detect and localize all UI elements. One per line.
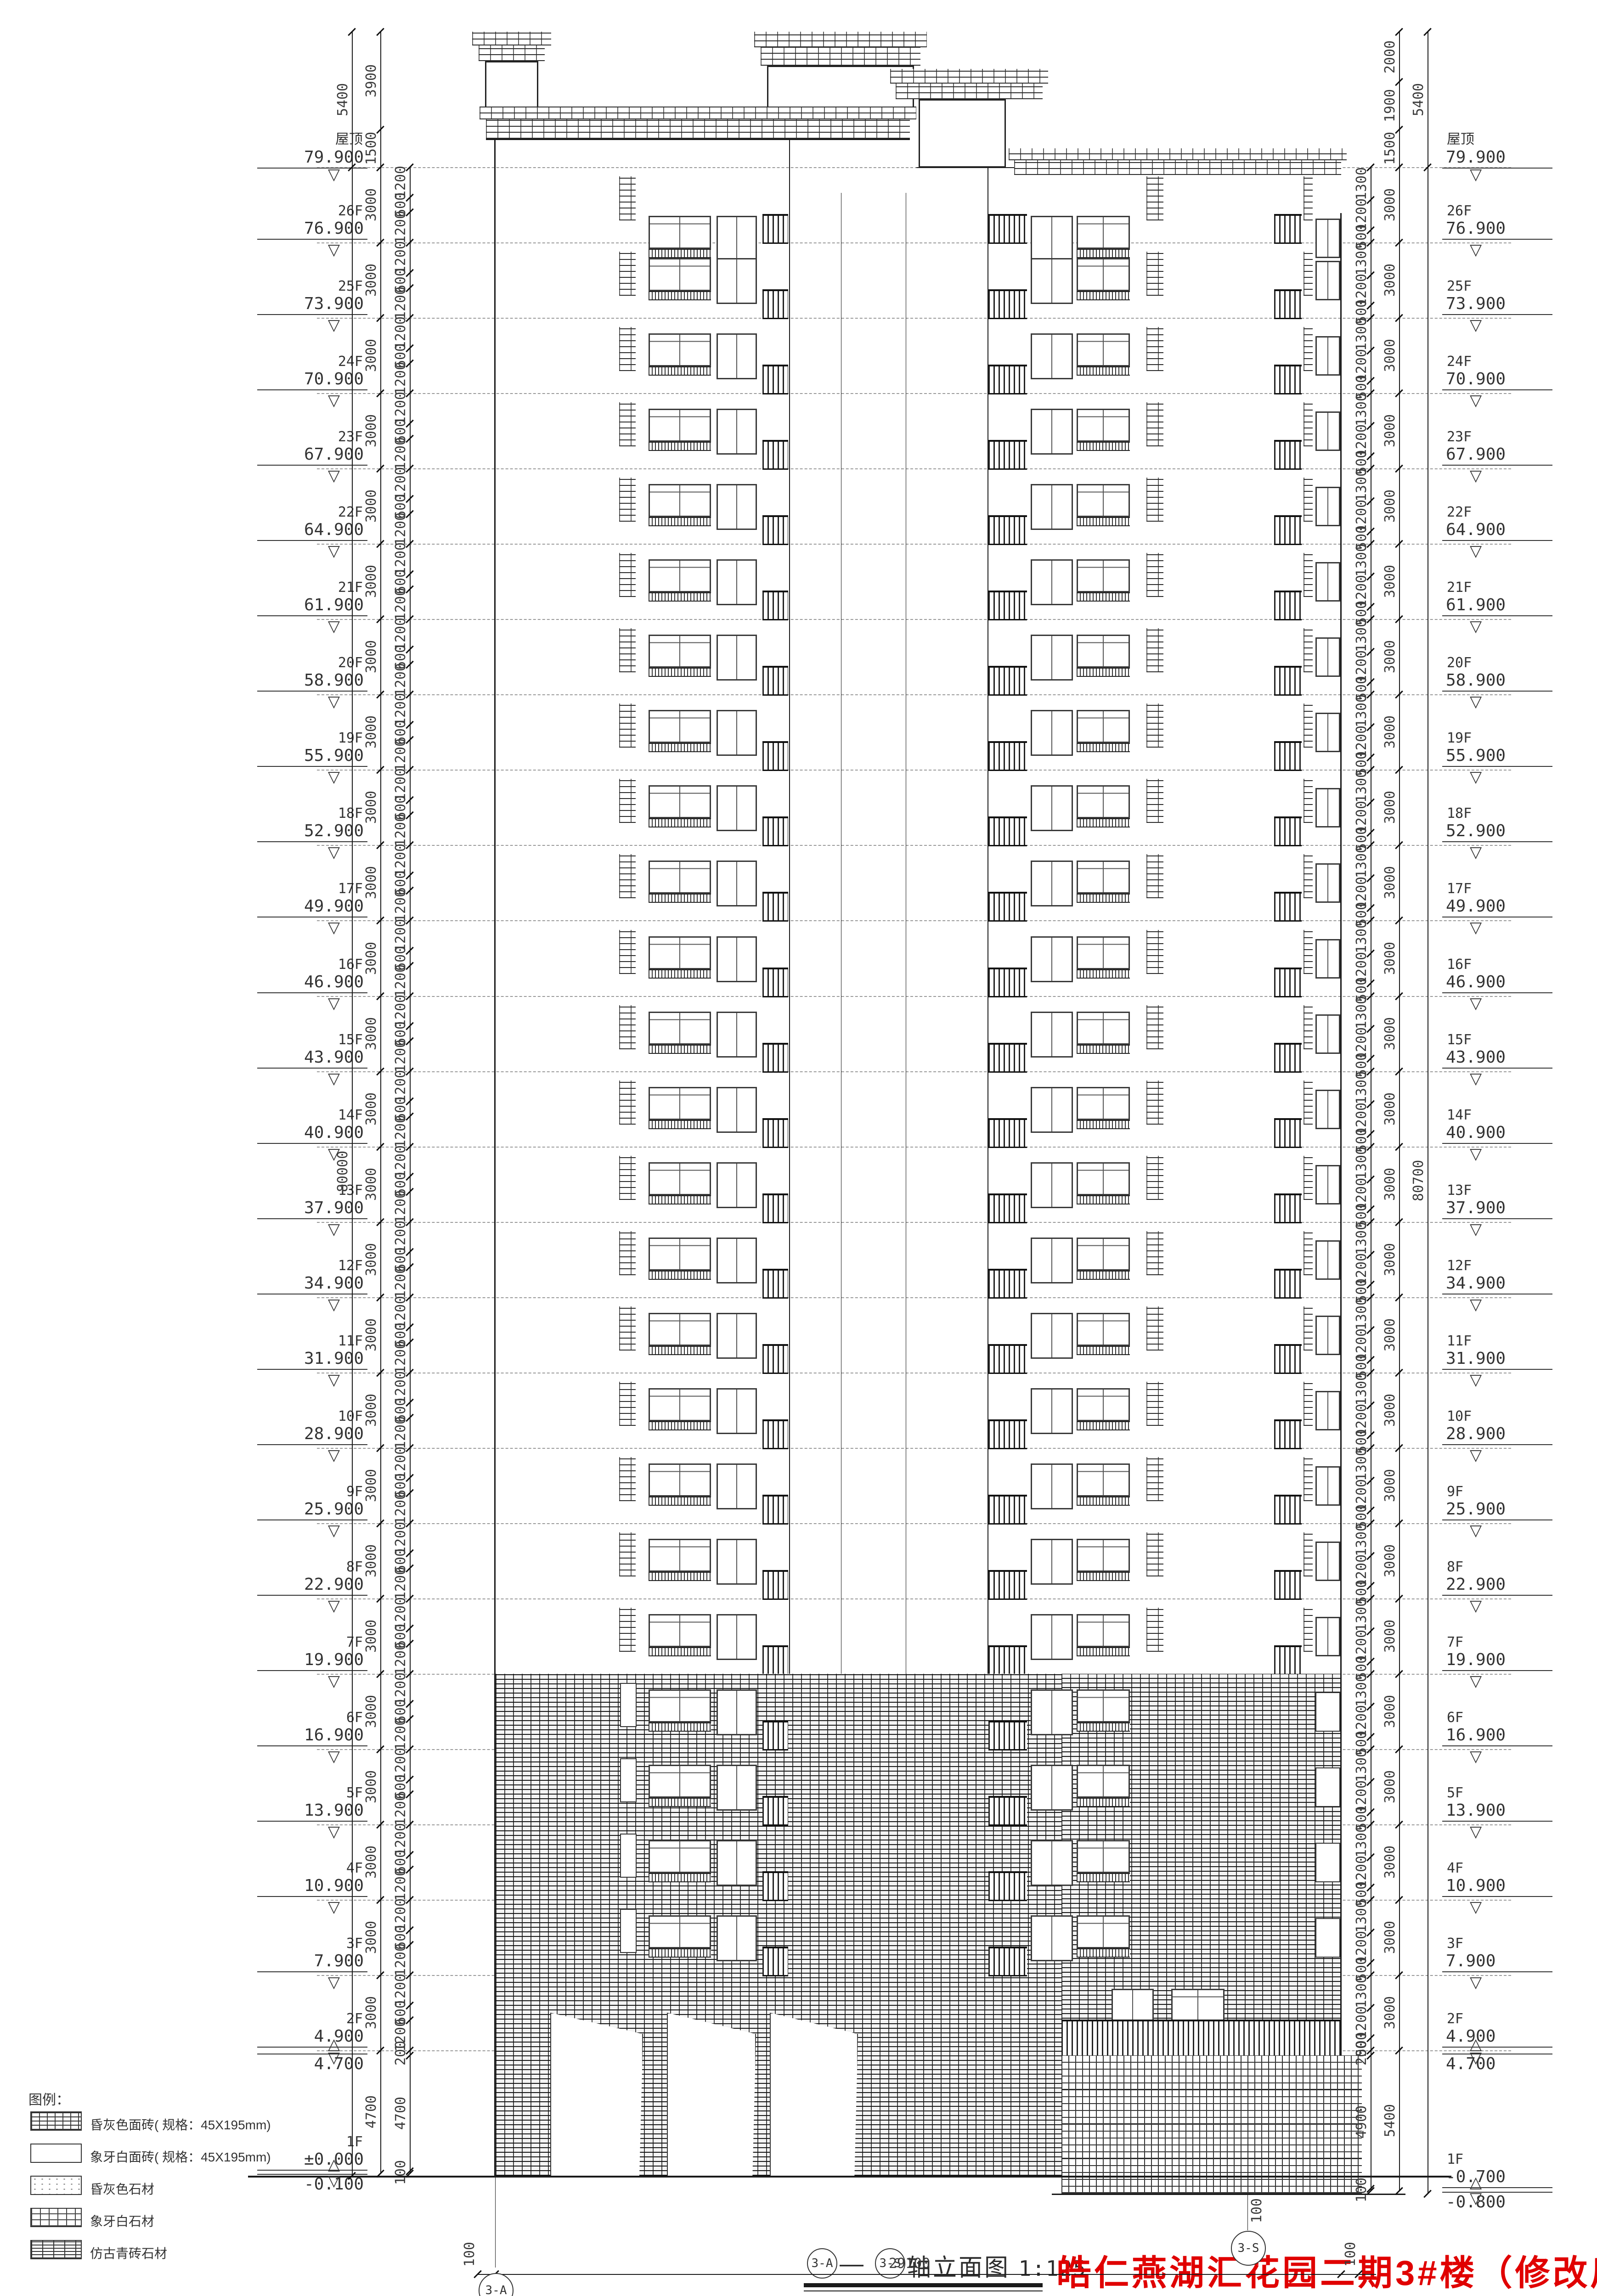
leftwing-core-joint	[789, 140, 790, 1674]
facade-brick-strip	[1304, 779, 1313, 823]
dimension-value: 3000	[365, 1017, 378, 1050]
balcony-railing	[1274, 666, 1302, 696]
dimension-value: 3000	[1383, 264, 1397, 297]
window-sill-railing	[649, 1421, 711, 1430]
window-sill-railing	[1077, 1647, 1130, 1656]
elevation-value: 58.900	[1442, 671, 1552, 692]
level-mark: 5F13.900▽	[1442, 1785, 1552, 1826]
dimension-value: 1200	[394, 1416, 408, 1449]
window	[1031, 1689, 1073, 1735]
level-symbol: ▽	[328, 319, 340, 332]
stair-bulkhead-cap-step	[761, 47, 920, 66]
dimension-value: 1500	[365, 132, 378, 165]
window-sill-railing	[1077, 1421, 1130, 1430]
level-mark: 屋顶79.900▽	[1442, 128, 1552, 169]
balcony-railing	[762, 741, 788, 771]
floor-label: 23F	[1442, 429, 1552, 445]
dimension-value: 200	[394, 2040, 408, 2065]
dimension-line	[1428, 32, 1428, 2194]
balcony-railing	[988, 1495, 1027, 1525]
floor-label: 12F	[257, 1258, 367, 1274]
floor-label: 5F	[1442, 1785, 1552, 1801]
elevation-value: 70.900	[1442, 370, 1552, 390]
facade-brick-strip	[1146, 1231, 1163, 1275]
building-right-edge	[1340, 213, 1342, 2055]
window-sill-railing	[1077, 291, 1130, 300]
facade-brick-strip	[1304, 1005, 1313, 1049]
dimension-value: 1200	[394, 1491, 408, 1525]
dimension-value: 5400	[1412, 83, 1426, 116]
facade-brick-strip	[1304, 1382, 1313, 1426]
level-symbol: ▽	[328, 470, 340, 482]
window-wide	[1077, 1689, 1130, 1722]
dimension-value: 1300	[1355, 845, 1369, 878]
facade-brick-strip	[1304, 1306, 1313, 1351]
level-mark: 6F16.900▽	[257, 1710, 367, 1751]
floor-label: 2F	[1442, 2011, 1552, 2027]
balcony-railing	[762, 440, 788, 470]
dimension-value: 3000	[1383, 1469, 1397, 1502]
level-mark: 24F70.900▽	[1442, 354, 1552, 395]
level-mark: 16F46.900▽	[1442, 957, 1552, 998]
dimension-value: 1200	[394, 889, 408, 922]
dimension-value: 3000	[365, 414, 378, 447]
level-symbol: ▽	[328, 1374, 340, 1386]
window-small	[1315, 1918, 1340, 1958]
floor-label: 20F	[257, 655, 367, 671]
dimension-value: 2000	[1383, 40, 1397, 73]
level-mark: 21F61.900▽	[1442, 580, 1552, 621]
facade-brick-strip	[1146, 854, 1163, 898]
window	[1315, 487, 1340, 526]
level-symbol: ▽	[1470, 1449, 1482, 1462]
dimension-line	[1399, 32, 1400, 2191]
window-sill-railing	[649, 1497, 711, 1506]
dimension-value: 1200	[394, 738, 408, 771]
elevation-value: 79.900	[1442, 148, 1552, 169]
balcony-railing	[988, 440, 1027, 470]
facade-brick-strip	[1304, 1532, 1313, 1576]
window	[1315, 1466, 1340, 1506]
dimension-value: 3000	[365, 1695, 378, 1728]
window-sill-railing	[1077, 592, 1130, 602]
dimension-value: 3000	[1383, 1846, 1397, 1879]
dimension-value: 3000	[1383, 1243, 1397, 1276]
floor-label: 8F	[1442, 1559, 1552, 1575]
level-symbol: ▽	[328, 1449, 340, 1462]
rightwing-cornice-top-course	[1009, 148, 1347, 160]
chimney-shaft	[485, 61, 538, 110]
elevation-value: 4.900	[257, 2027, 367, 2048]
level-symbol: ▽	[328, 2160, 340, 2172]
facade-brick-strip	[1146, 1382, 1163, 1426]
dimension-value: 1300	[1355, 769, 1369, 802]
level-mark: 3F7.900▽	[257, 1936, 367, 1977]
window	[717, 635, 757, 681]
balcony-railing	[1274, 1118, 1302, 1148]
window	[1031, 1313, 1073, 1359]
window-sill-railing	[1077, 1948, 1130, 1958]
balcony-railing	[988, 214, 1027, 244]
window-sill-railing	[649, 517, 711, 526]
dimension-value: 1200	[394, 1190, 408, 1223]
floor-centerline	[317, 544, 1511, 545]
floor-label: 13F	[1442, 1182, 1552, 1199]
level-symbol: ▽	[1470, 846, 1482, 859]
window-wide	[649, 1840, 711, 1873]
window	[717, 258, 757, 304]
floor-label: 22F	[257, 504, 367, 520]
dimension-value: 3000	[1383, 1996, 1397, 2029]
level-mark: 25F73.900▽	[1442, 278, 1552, 320]
axis-grid-line	[495, 2176, 496, 2268]
level-mark: 23F67.900▽	[1442, 429, 1552, 470]
level-mark: 21F61.900▽	[257, 580, 367, 621]
window-sill-railing	[649, 1873, 711, 1882]
balcony-railing	[988, 1570, 1027, 1600]
window	[717, 1012, 757, 1058]
facade-brick-strip	[1304, 1156, 1313, 1200]
elevation-value: 16.900	[257, 1726, 367, 1746]
window-sill-railing	[649, 1722, 711, 1732]
dimension-value: 1300	[1355, 1824, 1369, 1857]
facade-brick-strip	[1146, 1005, 1163, 1049]
dimension-value: 1300	[1355, 1221, 1369, 1255]
dimension-value: 1200	[394, 1717, 408, 1750]
level-symbol: ▽	[328, 1675, 340, 1688]
ground-line	[248, 2176, 1451, 2178]
balcony-railing	[1274, 1043, 1302, 1073]
floor-centerline	[317, 845, 1511, 846]
level-mark: 2F4.900▽	[257, 2011, 367, 2052]
window	[1315, 1391, 1340, 1430]
level-symbol: ▽	[328, 922, 340, 934]
window	[717, 1539, 757, 1585]
level-mark: 22F64.900▽	[1442, 504, 1552, 546]
dimension-value: 1300	[1355, 694, 1369, 727]
dimension-value: 1300	[1355, 1071, 1369, 1104]
balcony-railing	[988, 1193, 1027, 1223]
elevation-value: 40.900	[257, 1123, 367, 1144]
balcony-railing	[1274, 591, 1302, 620]
floor-label: 25F	[1442, 278, 1552, 294]
dimension-value: 3000	[365, 1770, 378, 1803]
balcony-railing	[762, 666, 788, 696]
dimension-value: 1200	[394, 211, 408, 244]
floor-centerline	[317, 1147, 1511, 1148]
balcony-railing	[988, 289, 1027, 319]
facade-brick-strip	[619, 930, 636, 974]
dimension-value: 1300	[1355, 468, 1369, 501]
window	[717, 861, 757, 906]
balcony-railing	[762, 1269, 788, 1299]
window-wide	[1077, 1238, 1130, 1271]
dimension-value: 1300	[1355, 317, 1369, 350]
dimension-value: 3000	[365, 1620, 378, 1653]
balcony-railing	[988, 1645, 1027, 1675]
floor-label: 15F	[257, 1032, 367, 1048]
level-mark: 10F28.900▽	[1442, 1408, 1552, 1450]
cornice-bottom-line	[486, 139, 910, 140]
balcony-railing	[762, 1570, 788, 1600]
level-symbol: ▽	[1470, 319, 1482, 332]
facade-brick-strip	[1304, 1608, 1313, 1652]
facade-brick-strip	[1146, 252, 1163, 296]
window-wide	[649, 1463, 711, 1497]
level-mark: 14F40.900▽	[257, 1107, 367, 1148]
elevation-value: 76.900	[257, 219, 367, 240]
dimension-value: 100	[1344, 2242, 1358, 2267]
elevation-value: 55.900	[257, 746, 367, 767]
dimension-value: 5400	[336, 83, 350, 116]
dimension-value: 4900	[1355, 2105, 1369, 2138]
floor-label: 16F	[257, 957, 367, 973]
facade-brick-strip	[1146, 1457, 1163, 1501]
level-mark: 5F13.900▽	[257, 1785, 367, 1826]
dimension-value: 3000	[1383, 1544, 1397, 1577]
project-title: 皓仁燕湖汇花园二期3#楼（修改后）	[1056, 2245, 1597, 2295]
window	[1031, 1463, 1073, 1509]
facade-brick-strip	[1304, 553, 1313, 597]
window	[1031, 216, 1073, 262]
facade-brick-strip	[1146, 930, 1163, 974]
balcony-railing	[988, 365, 1027, 394]
window-sill-railing	[649, 1045, 711, 1054]
window-wide	[649, 1915, 711, 1948]
level-symbol: ▽	[328, 771, 340, 783]
level-mark: 11F31.900▽	[257, 1333, 367, 1374]
dimension-value: 3000	[1383, 490, 1397, 523]
dimension-value: 3000	[365, 1846, 378, 1879]
floor-label: 23F	[257, 429, 367, 445]
level-mark: 17F49.900▽	[257, 881, 367, 922]
elevation-value: 22.900	[1442, 1575, 1552, 1596]
window-wide	[649, 861, 711, 894]
window	[717, 1388, 757, 1434]
stair-window	[620, 1909, 637, 1953]
window-sill-railing	[649, 1948, 711, 1958]
floor-centerline	[317, 1071, 1511, 1072]
elevation-value: 49.900	[257, 897, 367, 917]
facade-brick-strip	[619, 1457, 636, 1501]
dimension-value: 3000	[1383, 715, 1397, 748]
balcony-railing	[988, 741, 1027, 771]
level-mark: 13F37.900▽	[1442, 1182, 1552, 1224]
floor-label: 7F	[257, 1634, 367, 1650]
elevation-value: 46.900	[1442, 973, 1552, 993]
window	[717, 1238, 757, 1283]
balcony-railing	[988, 1344, 1027, 1374]
floor-label: 21F	[257, 580, 367, 596]
floor-label: 12F	[1442, 1258, 1552, 1274]
elevation-value: -0.700	[1442, 2167, 1552, 2188]
title-underline-thin	[804, 2290, 1043, 2291]
facade-brick-strip	[1304, 478, 1313, 522]
elevation-value: 61.900	[1442, 596, 1552, 616]
balcony-railing	[988, 1947, 1027, 1976]
level-mark: 12F34.900▽	[257, 1258, 367, 1299]
level-mark: -0.800▽	[1442, 2192, 1552, 2233]
window-sill-railing	[1077, 969, 1130, 979]
level-symbol: ▽	[328, 1826, 340, 1838]
balcony-railing	[762, 968, 788, 997]
window-wide	[649, 710, 711, 743]
entrance-opening	[667, 2013, 756, 2177]
window-wide	[1077, 1765, 1130, 1798]
window-wide	[1077, 861, 1130, 894]
facade-brick-strip	[1304, 402, 1313, 446]
floor-label: 17F	[257, 881, 367, 897]
window-sill-railing	[649, 894, 711, 903]
legend-swatch-brick	[30, 2111, 82, 2131]
floor-label: 3F	[257, 1936, 367, 1952]
dimension-value: 100	[1250, 2198, 1264, 2223]
floor-label: 15F	[1442, 1032, 1552, 1048]
level-symbol: ▽	[328, 1223, 340, 1236]
facade-brick-strip	[619, 628, 636, 672]
level-symbol: ▽	[1470, 1901, 1482, 1913]
elevation-value: 10.900	[1442, 1876, 1552, 1897]
chimney-cap	[472, 32, 551, 45]
level-symbol: ▽	[328, 1299, 340, 1311]
balcony-railing	[988, 515, 1027, 545]
dimension-value: 3000	[1383, 640, 1397, 673]
dimension-value: 3000	[365, 1092, 378, 1125]
legend-label: 象牙白石材	[90, 2212, 154, 2230]
floor-label: 24F	[257, 354, 367, 370]
balcony-railing	[762, 365, 788, 394]
window	[717, 1313, 757, 1359]
dimension-value: 1300	[1355, 996, 1369, 1029]
facade-brick-strip	[619, 1608, 636, 1652]
dimension-value: 1300	[1355, 1297, 1369, 1330]
elevation-value: 28.900	[1442, 1424, 1552, 1445]
dimension-value: 3000	[365, 941, 378, 974]
balcony-railing	[988, 1269, 1027, 1299]
facade-brick-strip	[1146, 703, 1163, 748]
dimension-value: 1200	[394, 437, 408, 470]
floor-label: 25F	[257, 278, 367, 294]
elevation-value: 19.900	[1442, 1650, 1552, 1671]
stair-window	[620, 1683, 637, 1727]
level-mark: 20F58.900▽	[257, 655, 367, 696]
dimension-value: 1200	[394, 1115, 408, 1148]
dimension-value: 1200	[394, 361, 408, 394]
level-mark: 4F10.900▽	[1442, 1860, 1552, 1902]
window	[717, 409, 757, 455]
dimension-value: 3000	[1383, 1620, 1397, 1653]
level-symbol: ▽	[1470, 1073, 1482, 1085]
window	[717, 785, 757, 831]
window	[1315, 1090, 1340, 1129]
dimension-value: 3900	[365, 64, 378, 97]
dimension-line	[352, 32, 353, 2176]
window-sill-railing	[1077, 249, 1130, 258]
facade-brick-strip	[619, 402, 636, 446]
level-symbol: ▽	[1470, 1299, 1482, 1311]
elevation-value: 34.900	[1442, 1274, 1552, 1294]
legend-label: 仿古青砖石材	[90, 2244, 167, 2262]
window-wide	[1077, 1313, 1130, 1346]
elevation-value: 43.900	[257, 1048, 367, 1069]
balcony-railing	[762, 1118, 788, 1148]
dimension-value: 3000	[1383, 1017, 1397, 1050]
dimension-value: 3000	[1383, 866, 1397, 899]
level-symbol: ▽	[1470, 1600, 1482, 1612]
elevation-value: 16.900	[1442, 1726, 1552, 1746]
window-sill-railing	[1077, 668, 1130, 677]
facade-brick-strip	[1304, 1457, 1313, 1501]
dimension-value: 1300	[1355, 1523, 1369, 1556]
window-sill-railing	[649, 442, 711, 451]
window-sill-railing	[1077, 1798, 1130, 1807]
level-mark: 8F22.900▽	[257, 1559, 367, 1600]
level-mark: 9F25.900▽	[1442, 1484, 1552, 1525]
elevation-value: 28.900	[257, 1424, 367, 1445]
level-mark: 19F55.900▽	[1442, 730, 1552, 771]
floor-label: 18F	[1442, 805, 1552, 822]
window-wide	[1077, 258, 1130, 291]
facade-brick-strip	[1146, 553, 1163, 597]
floor-label: 19F	[257, 730, 367, 746]
floor-label: 屋顶	[257, 128, 367, 148]
window	[717, 1087, 757, 1133]
level-symbol: ▽	[1470, 696, 1482, 708]
elevation-value: 25.900	[257, 1500, 367, 1520]
entrance-opening	[550, 2013, 643, 2177]
window-wide	[1077, 936, 1130, 969]
floor-label: 26F	[257, 203, 367, 219]
legend-swatch-grid	[30, 2208, 82, 2227]
dimension-value: 3000	[1383, 1318, 1397, 1351]
dimension-value: 1300	[1355, 1598, 1369, 1631]
dimension-value: 3000	[365, 715, 378, 748]
level-symbol: ▽	[1470, 244, 1482, 256]
dimension-value: 1300	[1355, 920, 1369, 953]
floor-centerline	[317, 1598, 1511, 1599]
level-symbol: ▽	[328, 1600, 340, 1612]
floor-centerline	[317, 468, 1511, 469]
balcony-railing	[988, 1871, 1027, 1901]
dimension-value: 3000	[365, 565, 378, 598]
dimension-value: 1200	[394, 964, 408, 997]
floor-centerline	[317, 770, 1511, 771]
window-wide	[1077, 1539, 1130, 1572]
dimension-value: 3000	[365, 1168, 378, 1201]
facade-brick-strip	[1146, 176, 1163, 220]
dimension-value: 3000	[365, 264, 378, 297]
facade-brick-strip	[619, 703, 636, 748]
window-sill-railing	[649, 1798, 711, 1807]
level-mark: 8F22.900▽	[1442, 1559, 1552, 1600]
dimension-value: 3000	[1383, 1092, 1397, 1125]
elevation-value: 46.900	[257, 973, 367, 993]
window	[1031, 635, 1073, 681]
window	[717, 1840, 757, 1886]
window	[1031, 1614, 1073, 1660]
elevation-value: 13.900	[1442, 1801, 1552, 1822]
level-symbol: ▽	[328, 169, 340, 181]
entrance-opening	[770, 2013, 858, 2177]
level-mark: 26F76.900▽	[257, 203, 367, 244]
window-sill-railing	[1077, 894, 1130, 903]
dimension-line	[380, 32, 381, 2173]
axis-bubble-left: 3-A	[479, 2273, 514, 2296]
window-wide	[1077, 1463, 1130, 1497]
elevation-value: 7.900	[257, 1952, 367, 1972]
core-line	[906, 193, 906, 1674]
level-mark: 1F-0.700▽	[1442, 2151, 1552, 2193]
